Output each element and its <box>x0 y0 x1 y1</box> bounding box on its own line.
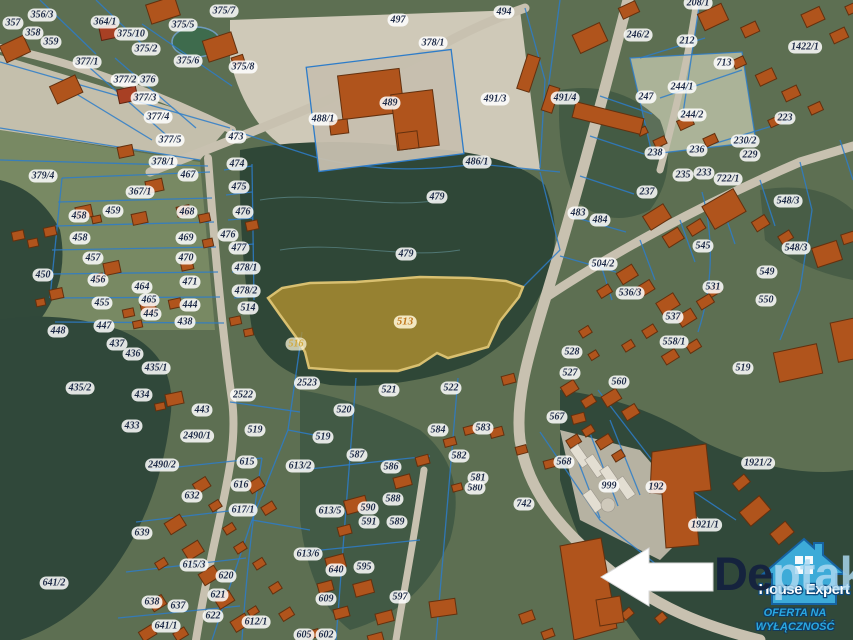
aerial-map <box>0 0 853 640</box>
watermark-suffix: ptak <box>772 547 853 600</box>
exclusivity-tagline: OFERTA NA WYŁĄCZNOŚĆ <box>737 606 853 634</box>
watermark-prefix: De <box>714 547 772 600</box>
watermark: Deptak <box>714 550 853 597</box>
tagline-line1: OFERTA NA <box>737 606 853 620</box>
tagline-line2: WYŁĄCZNOŚĆ <box>737 620 853 634</box>
map-viewport: 356/3364/1357358359375/10375/2375/5375/7… <box>0 0 853 640</box>
